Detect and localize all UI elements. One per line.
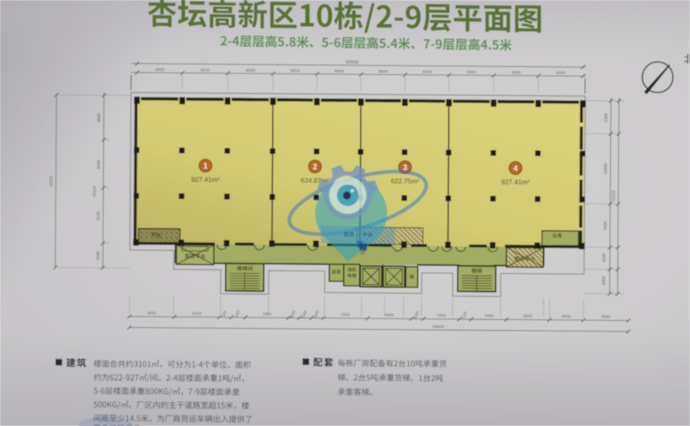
svg-text:8100: 8100	[192, 311, 202, 316]
svg-text:9000: 9000	[385, 312, 395, 317]
svg-text:6500: 6500	[523, 313, 533, 318]
svg-text:9000: 9000	[147, 310, 157, 315]
svg-text:1900: 1900	[262, 311, 272, 316]
svg-text:9000: 9000	[334, 68, 344, 73]
svg-text:10000: 10000	[603, 162, 608, 174]
svg-text:9000: 9000	[467, 69, 477, 74]
svg-text:3300: 3300	[603, 112, 608, 122]
svg-text:9000: 9000	[155, 67, 165, 72]
svg-text:9000: 9000	[562, 314, 572, 319]
svg-text:15110: 15110	[611, 190, 616, 202]
svg-text:4500: 4500	[601, 252, 606, 262]
svg-text:622.75m²: 622.75m²	[391, 178, 420, 185]
svg-text:16110: 16110	[48, 175, 53, 187]
svg-text:16110: 16110	[92, 185, 97, 197]
svg-text:90000: 90000	[346, 60, 359, 65]
svg-text:1: 1	[203, 161, 208, 170]
svg-text:56000: 56000	[433, 324, 445, 329]
svg-text:2400: 2400	[341, 312, 351, 317]
svg-text:9000: 9000	[511, 70, 521, 75]
svg-text:9000: 9000	[556, 70, 566, 75]
svg-text:927.41m²: 927.41m²	[501, 179, 530, 186]
svg-text:9000: 9000	[246, 68, 256, 73]
svg-text:4900: 4900	[603, 220, 608, 230]
svg-text:9000: 9000	[378, 69, 388, 74]
svg-text:2400: 2400	[484, 313, 494, 318]
svg-text:2: 2	[313, 162, 318, 171]
svg-text:9000: 9000	[200, 67, 210, 72]
svg-text:927.41m²: 927.41m²	[191, 177, 220, 184]
svg-text:4000: 4000	[601, 275, 606, 285]
svg-text:2400: 2400	[437, 313, 447, 318]
svg-text:9000: 9000	[601, 314, 611, 319]
svg-text:9000: 9000	[422, 69, 432, 74]
svg-text:9000: 9000	[290, 68, 300, 73]
svg-text:4: 4	[513, 164, 518, 173]
svg-text:9150: 9150	[96, 210, 101, 220]
svg-text:9600: 9600	[96, 112, 101, 122]
svg-text:4500: 4500	[95, 250, 100, 260]
svg-text:9000: 9000	[96, 159, 101, 169]
